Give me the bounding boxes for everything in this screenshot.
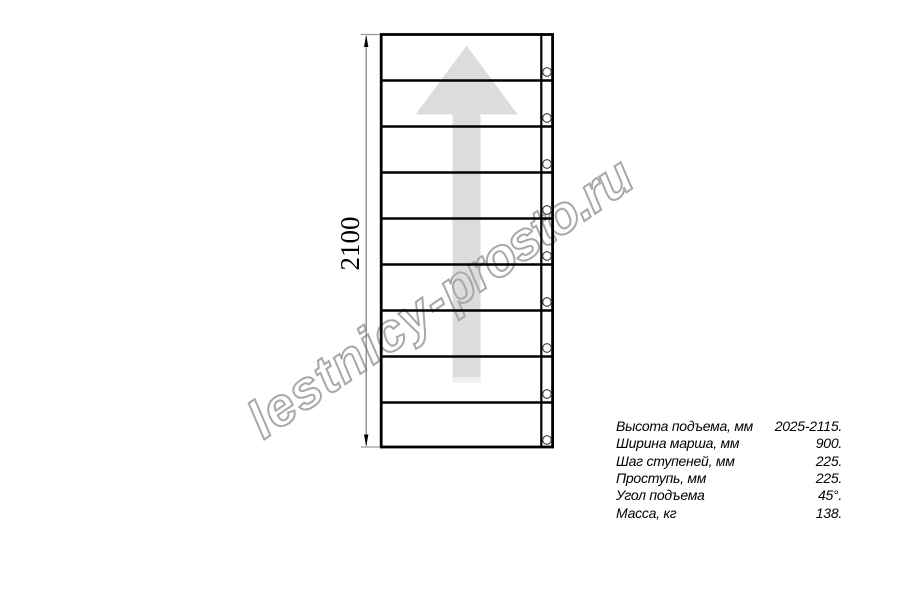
svg-text:2100: 2100 — [335, 217, 365, 271]
svg-text:lestnicy-prosto.ru: lestnicy-prosto.ru — [237, 147, 644, 450]
